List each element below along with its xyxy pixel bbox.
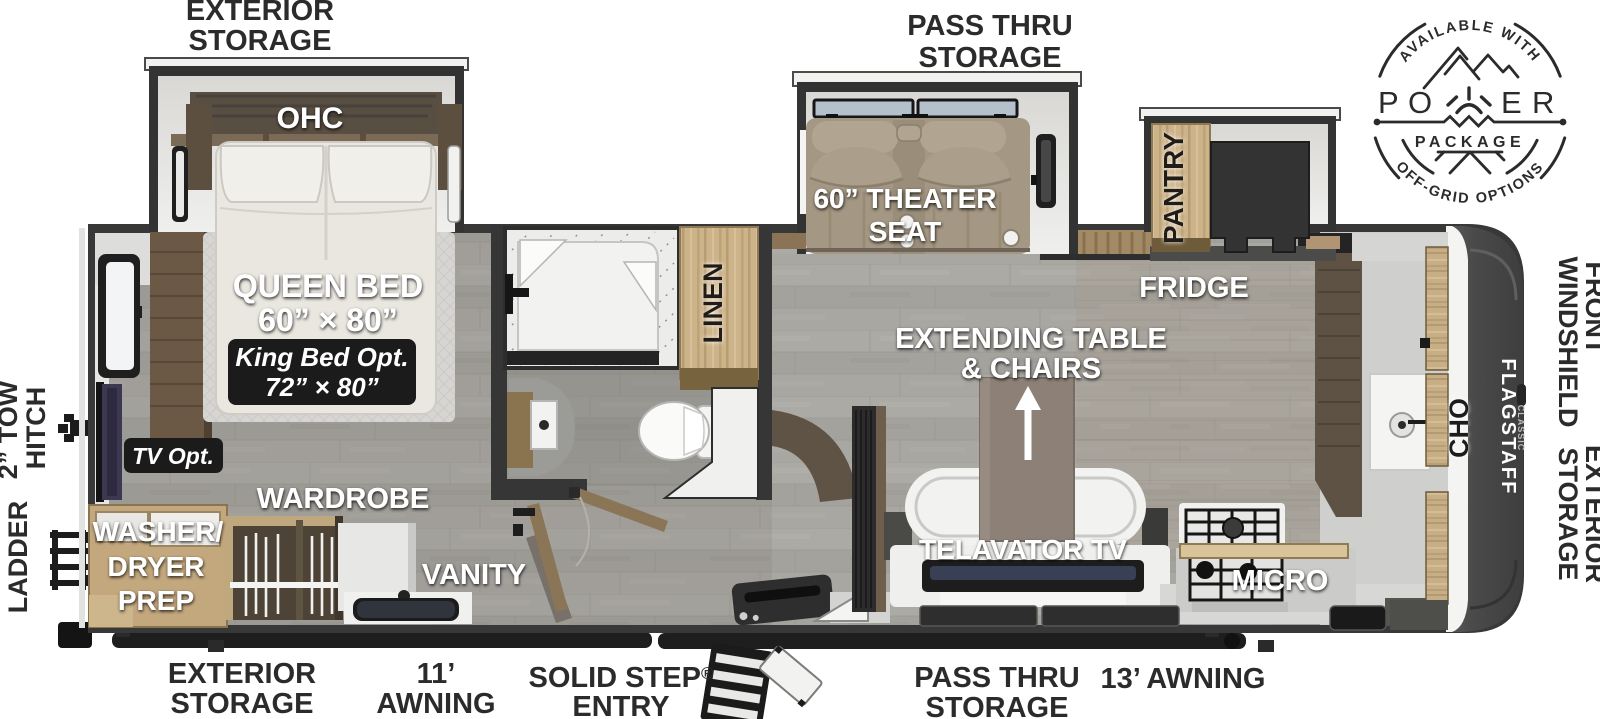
svg-text:ENTRY: ENTRY (572, 691, 669, 719)
svg-text:13’ AWNING: 13’ AWNING (1101, 663, 1266, 695)
svg-text:11’: 11’ (417, 658, 456, 690)
svg-text:AWNING: AWNING (376, 688, 495, 719)
svg-text:SOLID STEP®: SOLID STEP® (529, 662, 714, 694)
svg-text:King Bed Opt.: King Bed Opt. (235, 342, 408, 372)
svg-text:FLAGSTAFF: FLAGSTAFF (1497, 358, 1519, 495)
svg-text:72” × 80”: 72” × 80” (265, 372, 378, 402)
svg-text:HITCH: HITCH (21, 387, 51, 470)
svg-text:LADDER: LADDER (3, 501, 33, 614)
svg-text:& CHAIRS: & CHAIRS (961, 353, 1101, 385)
svg-text:OHC: OHC (277, 102, 344, 135)
svg-text:WINDSHIELD: WINDSHIELD (1553, 257, 1583, 428)
svg-text:STORAGE: STORAGE (171, 688, 314, 719)
svg-text:PACKAGE: PACKAGE (1415, 134, 1525, 151)
svg-text:STORAGE: STORAGE (189, 25, 332, 57)
svg-text:60” THEATER: 60” THEATER (813, 183, 996, 214)
svg-text:STORAGE: STORAGE (1553, 447, 1583, 580)
svg-text:LINEN: LINEN (698, 263, 728, 344)
svg-text:SEAT: SEAT (869, 216, 942, 247)
svg-text:WARDROBE: WARDROBE (257, 483, 429, 515)
svg-text:E: E (1501, 85, 1522, 120)
svg-text:P: P (1378, 85, 1399, 120)
svg-text:STORAGE: STORAGE (919, 42, 1062, 74)
svg-text:CHO: CHO (1444, 398, 1474, 458)
svg-text:O: O (1408, 85, 1432, 120)
svg-text:PANTRY: PANTRY (1158, 132, 1189, 244)
svg-text:TELAVATOR TV: TELAVATOR TV (919, 534, 1127, 565)
svg-text:MICRO: MICRO (1232, 565, 1329, 597)
svg-text:STORAGE: STORAGE (926, 692, 1069, 719)
svg-text:TV Opt.: TV Opt. (132, 443, 214, 469)
svg-text:CLASSIC: CLASSIC (1516, 405, 1526, 452)
svg-text:PASS THRU: PASS THRU (907, 10, 1072, 42)
svg-text:PASS THRU: PASS THRU (914, 662, 1079, 694)
svg-text:EXTENDING TABLE: EXTENDING TABLE (895, 323, 1167, 355)
svg-text:DRYER: DRYER (108, 551, 205, 582)
svg-text:WASHER/: WASHER/ (93, 516, 224, 547)
svg-text:60” × 80”: 60” × 80” (258, 302, 398, 338)
svg-text:2” TOW: 2” TOW (0, 380, 23, 479)
svg-text:EXTERIOR: EXTERIOR (168, 658, 316, 690)
svg-text:EXTERIOR: EXTERIOR (186, 0, 334, 27)
svg-text:QUEEN BED: QUEEN BED (233, 268, 423, 304)
svg-text:PREP: PREP (118, 585, 194, 616)
svg-text:FRIDGE: FRIDGE (1139, 272, 1249, 304)
svg-text:R: R (1532, 85, 1554, 120)
svg-text:VANITY: VANITY (422, 559, 526, 591)
